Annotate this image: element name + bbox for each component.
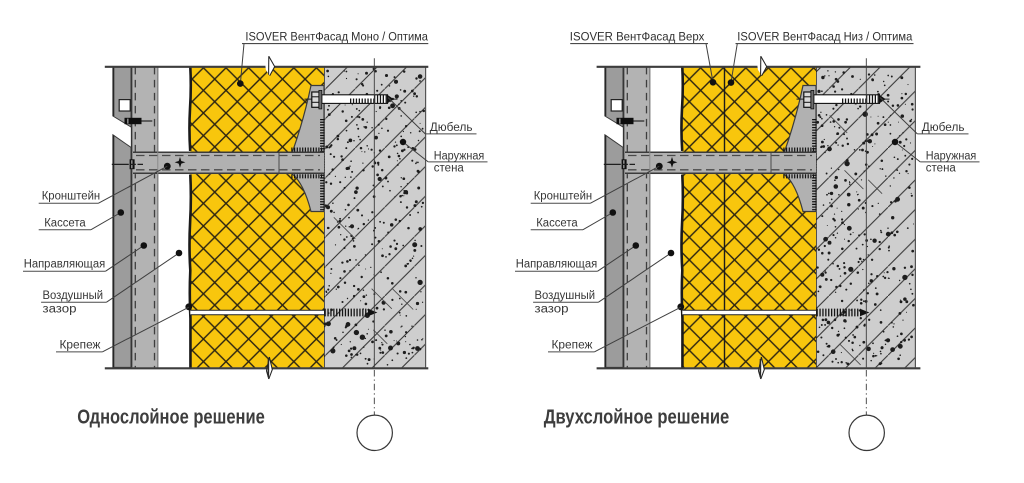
svg-text:Кронштейн: Кронштейн bbox=[534, 190, 593, 202]
svg-text:Воздушный: Воздушный bbox=[535, 290, 596, 302]
svg-text:стена: стена bbox=[926, 162, 957, 174]
svg-text:Воздушный: Воздушный bbox=[43, 290, 104, 302]
svg-text:ISOVER ВентФасад Низ / Оптима: ISOVER ВентФасад Низ / Оптима bbox=[737, 30, 912, 44]
svg-text:ISOVER ВентФасад Моно / Оптима: ISOVER ВентФасад Моно / Оптима bbox=[245, 30, 428, 44]
svg-text:Направляющая: Направляющая bbox=[24, 258, 106, 270]
svg-text:Крепеж: Крепеж bbox=[60, 340, 101, 352]
svg-text:Наружная: Наружная bbox=[926, 150, 977, 162]
svg-text:Крепеж: Крепеж bbox=[552, 340, 593, 352]
svg-text:Кронштейн: Кронштейн bbox=[42, 190, 100, 202]
svg-text:Дюбель: Дюбель bbox=[430, 122, 473, 134]
svg-text:Направляющая: Направляющая bbox=[516, 258, 598, 270]
svg-text:Кассета: Кассета bbox=[536, 218, 578, 230]
svg-text:стена: стена bbox=[434, 162, 465, 174]
svg-text:зазор: зазор bbox=[43, 303, 77, 315]
svg-text:ISOVER ВентФасад Верх: ISOVER ВентФасад Верх bbox=[570, 30, 705, 44]
svg-text:Кассета: Кассета bbox=[44, 218, 86, 230]
svg-text:Двухслойное решение: Двухслойное решение bbox=[544, 407, 730, 429]
svg-text:Дюбель: Дюбель bbox=[922, 122, 965, 134]
svg-text:Однослойное решение: Однослойное решение bbox=[77, 407, 265, 429]
svg-text:зазор: зазор bbox=[535, 303, 569, 315]
svg-text:Наружная: Наружная bbox=[434, 150, 485, 162]
